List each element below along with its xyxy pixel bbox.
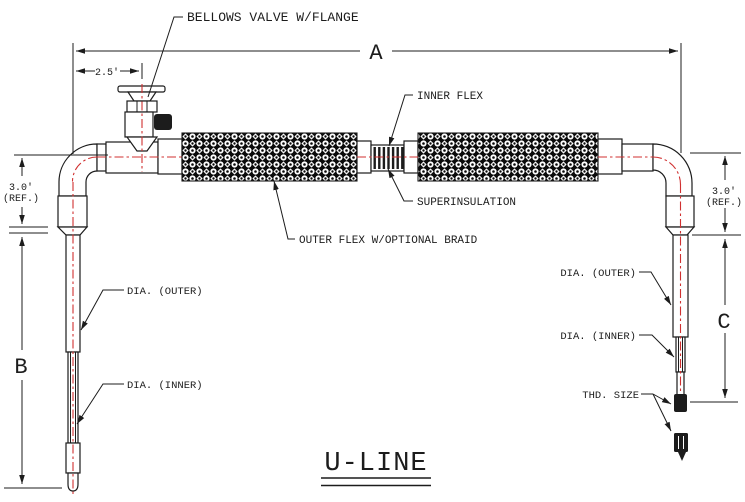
nut-body xyxy=(674,433,688,452)
leader-dia-outer-left xyxy=(81,290,124,330)
ref-right-value: 3.0' xyxy=(712,186,736,198)
callout-outer-flex: OUTER FLEX W/OPTIONAL BRAID xyxy=(274,181,478,247)
callout-dia-outer-left: DIA. (OUTER) xyxy=(81,286,203,330)
bellows-rib xyxy=(383,147,385,169)
label-outer-flex: OUTER FLEX W/OPTIONAL BRAID xyxy=(299,235,478,247)
bellows-rib xyxy=(401,147,403,169)
leader-dia-inner-right xyxy=(639,335,674,357)
dim-25-label: 2.5' xyxy=(95,67,119,79)
label-bellows-valve: BELLOWS VALVE W/FLANGE xyxy=(187,10,359,25)
right-elbow xyxy=(653,144,692,196)
outer-flex-braid-left xyxy=(182,133,357,181)
leader-dia-inner-left xyxy=(77,384,124,424)
callout-dia-inner-right: DIA. (INNER) xyxy=(560,331,674,357)
bellows-rib xyxy=(374,147,376,169)
left-elbow xyxy=(59,144,97,196)
pipe-assembly xyxy=(58,133,694,491)
label-superinsulation: SUPERINSULATION xyxy=(417,197,516,209)
loose-thread-nut xyxy=(674,433,688,461)
title-text: U-LINE xyxy=(324,449,427,479)
ref-left-note: (REF.) xyxy=(3,193,39,205)
bellows-rib xyxy=(392,147,394,169)
ref-left-value: 3.0' xyxy=(9,182,33,194)
outer-flex-braid-right xyxy=(418,133,598,181)
callout-bellows-valve: BELLOWS VALVE W/FLANGE xyxy=(148,10,359,97)
drawing-canvas: A 2.5' BELLOWS VALVE W/FLANGE 3.0' (REF.… xyxy=(0,0,745,502)
leader-superinsulation xyxy=(388,169,413,201)
callout-dia-inner-left: DIA. (INNER) xyxy=(77,380,203,424)
dim-b-label: B xyxy=(14,355,27,380)
label-dia-inner-right: DIA. (INNER) xyxy=(560,331,636,343)
right-threaded-fitting xyxy=(674,394,687,412)
valve-knob xyxy=(154,114,172,130)
nut-tail xyxy=(678,452,686,461)
leader-bellows-valve xyxy=(148,17,183,97)
label-inner-flex: INNER FLEX xyxy=(417,91,483,103)
leader-outer-flex xyxy=(274,181,295,239)
callout-dia-outer-right: DIA. (OUTER) xyxy=(560,268,671,305)
label-dia-inner-left: DIA. (INNER) xyxy=(127,380,203,392)
dimension-ref-right: 3.0' (REF.) xyxy=(690,153,742,235)
label-dia-outer-right: DIA. (OUTER) xyxy=(560,268,636,280)
dim-c-label: C xyxy=(717,310,730,335)
dimension-b: B xyxy=(4,233,62,488)
leader-dia-outer-right xyxy=(639,272,671,305)
dimension-valve-offset: 2.5' xyxy=(76,63,142,79)
leader-inner-flex xyxy=(389,95,413,146)
label-dia-outer-left: DIA. (OUTER) xyxy=(127,286,203,298)
label-thd-size: THD. SIZE xyxy=(582,390,639,402)
bellows-rib xyxy=(378,147,380,169)
dimension-c: C xyxy=(690,239,738,402)
u-line-drawing: A 2.5' BELLOWS VALVE W/FLANGE 3.0' (REF.… xyxy=(0,0,745,502)
dim-a-label: A xyxy=(369,41,383,66)
inner-flex-bellows xyxy=(371,145,404,171)
valve-body xyxy=(125,112,153,137)
drawing-title: U-LINE xyxy=(321,449,431,486)
ref-right-note: (REF.) xyxy=(706,197,742,209)
bellows-rib xyxy=(397,147,399,169)
callout-thd-size: THD. SIZE xyxy=(582,390,671,431)
bellows-rib xyxy=(387,147,389,169)
